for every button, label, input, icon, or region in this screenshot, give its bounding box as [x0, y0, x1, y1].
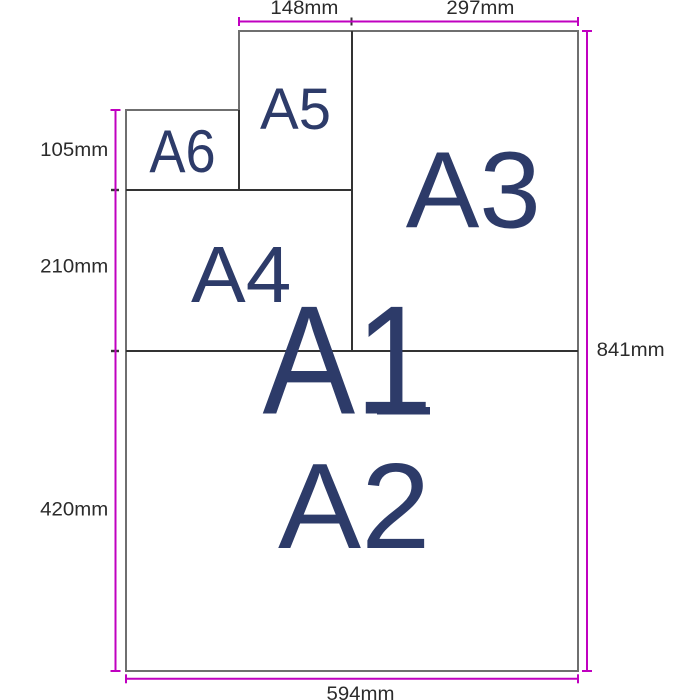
svg-text:420mm: 420mm [40, 500, 108, 521]
svg-text:A6: A6 [149, 118, 215, 185]
svg-text:594mm: 594mm [327, 684, 395, 700]
svg-text:A3: A3 [406, 129, 541, 251]
svg-text:148mm: 148mm [270, 0, 338, 19]
svg-text:A5: A5 [260, 77, 331, 142]
svg-text:297mm: 297mm [446, 0, 514, 19]
svg-text:A2: A2 [278, 438, 430, 574]
svg-text:105mm: 105mm [40, 140, 108, 161]
svg-text:841mm: 841mm [597, 340, 665, 361]
svg-text:210mm: 210mm [40, 257, 108, 278]
svg-text:A1: A1 [263, 274, 433, 447]
